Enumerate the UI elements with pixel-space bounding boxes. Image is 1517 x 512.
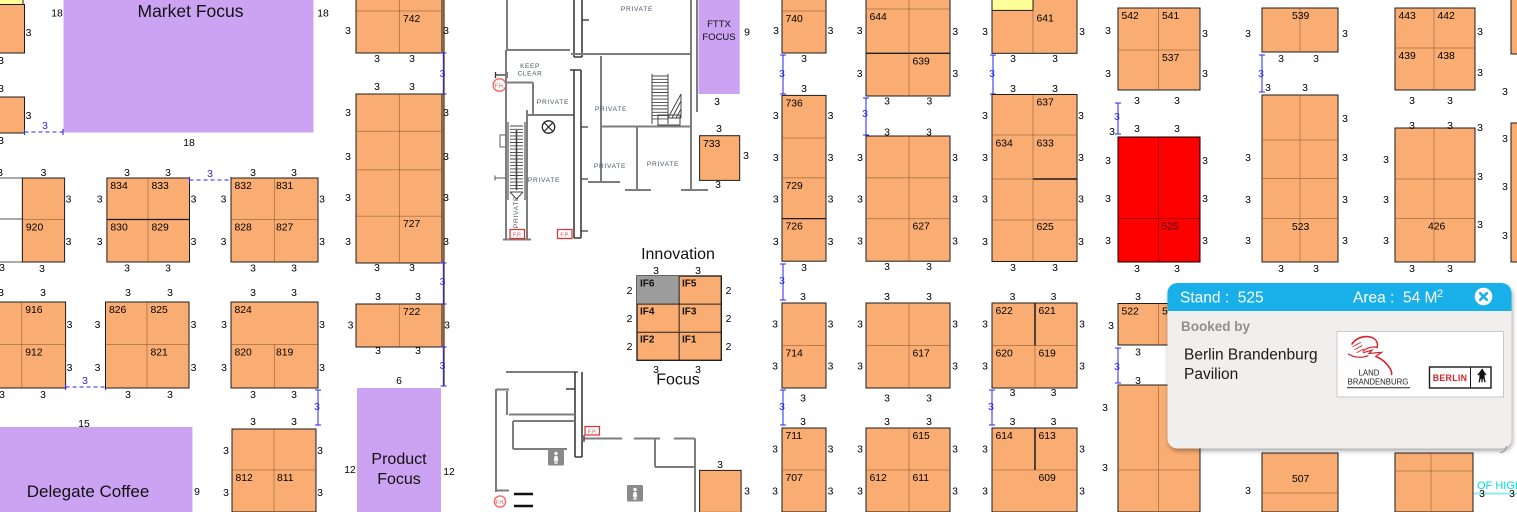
svg-text:3: 3	[1010, 84, 1016, 95]
svg-text:3: 3	[952, 237, 958, 248]
svg-text:3: 3	[319, 237, 325, 248]
svg-text:3: 3	[1245, 29, 1251, 40]
svg-text:3: 3	[926, 417, 932, 428]
svg-text:3: 3	[801, 54, 807, 65]
svg-text:3: 3	[1342, 29, 1348, 40]
svg-text:PRIVATE: PRIVATE	[647, 161, 679, 168]
svg-text:3: 3	[828, 362, 834, 373]
svg-text:F.P.: F.P.	[513, 233, 522, 239]
svg-text:3: 3	[1174, 96, 1180, 107]
svg-text:3: 3	[779, 276, 785, 287]
svg-text:812: 812	[236, 473, 254, 484]
svg-text:3: 3	[772, 445, 778, 456]
svg-text:3: 3	[409, 82, 415, 93]
svg-text:3: 3	[95, 363, 101, 374]
svg-text:BERLIN: BERLIN	[1433, 373, 1468, 383]
svg-text:3: 3	[801, 263, 807, 274]
svg-text:3: 3	[291, 264, 297, 275]
svg-text:542: 542	[1122, 11, 1140, 22]
svg-text:3: 3	[1079, 445, 1085, 456]
svg-text:3: 3	[191, 237, 197, 248]
svg-text:3: 3	[1010, 292, 1016, 303]
svg-text:824: 824	[235, 305, 253, 316]
svg-text:614: 614	[996, 431, 1014, 442]
svg-text:3: 3	[1245, 195, 1251, 206]
svg-text:707: 707	[786, 473, 804, 484]
svg-text:3: 3	[1447, 96, 1453, 107]
svg-text:3: 3	[443, 152, 449, 163]
svg-text:3: 3	[1134, 264, 1140, 275]
svg-text:3: 3	[1109, 127, 1115, 138]
svg-text:3: 3	[66, 237, 72, 248]
svg-text:3: 3	[857, 195, 863, 206]
svg-text:3: 3	[191, 363, 197, 374]
svg-text:3: 3	[1477, 123, 1483, 134]
svg-text:3: 3	[1202, 194, 1208, 205]
svg-text:Product: Product	[371, 451, 427, 468]
svg-text:3: 3	[952, 69, 958, 80]
svg-text:3: 3	[744, 487, 750, 498]
svg-text:3: 3	[1105, 236, 1111, 247]
svg-text:F.H.: F.H.	[496, 500, 505, 506]
svg-text:3: 3	[345, 152, 351, 163]
svg-text:3: 3	[415, 346, 421, 357]
svg-text:3: 3	[26, 28, 32, 39]
svg-text:3: 3	[1313, 264, 1319, 275]
svg-text:3: 3	[250, 390, 256, 401]
svg-text:541: 541	[1162, 11, 1180, 22]
svg-text:3: 3	[221, 320, 227, 331]
svg-text:613: 613	[1039, 431, 1057, 442]
svg-text:3: 3	[0, 56, 4, 67]
svg-text:3: 3	[1409, 264, 1415, 275]
svg-text:3: 3	[828, 237, 834, 248]
svg-text:3: 3	[1245, 486, 1251, 497]
svg-text:3: 3	[828, 111, 834, 122]
svg-text:523: 523	[1292, 222, 1310, 233]
svg-text:3: 3	[779, 69, 785, 80]
svg-text:3: 3	[773, 153, 779, 164]
svg-text:726: 726	[786, 222, 804, 233]
svg-text:3: 3	[1102, 463, 1108, 474]
svg-text:Area : 54 M: Area : 54 M	[1353, 290, 1437, 307]
svg-text:3: 3	[773, 237, 779, 248]
svg-text:3: 3	[250, 264, 256, 275]
svg-text:442: 442	[1438, 11, 1456, 22]
svg-text:3: 3	[982, 237, 988, 248]
svg-text:3: 3	[773, 195, 779, 206]
svg-text:18: 18	[51, 9, 63, 20]
svg-text:3: 3	[1010, 263, 1016, 274]
svg-text:3: 3	[125, 390, 131, 401]
svg-text:3: 3	[857, 445, 863, 456]
svg-text:9: 9	[194, 487, 200, 498]
svg-text:3: 3	[715, 180, 721, 191]
svg-text:3: 3	[1010, 54, 1016, 65]
svg-text:641: 641	[1037, 13, 1055, 24]
svg-text:3: 3	[772, 487, 778, 498]
svg-text:6: 6	[396, 376, 402, 387]
svg-text:3: 3	[884, 417, 890, 428]
svg-text:3: 3	[800, 394, 806, 405]
svg-text:832: 832	[235, 181, 253, 192]
svg-text:619: 619	[1039, 349, 1057, 360]
svg-text:3: 3	[779, 402, 785, 413]
svg-text:3: 3	[124, 168, 130, 179]
svg-text:3: 3	[345, 108, 351, 119]
svg-text:3: 3	[828, 320, 834, 331]
svg-text:820: 820	[235, 348, 253, 359]
svg-text:3: 3	[1010, 388, 1016, 399]
svg-text:438: 438	[1438, 51, 1456, 62]
svg-text:522: 522	[1122, 307, 1140, 318]
svg-text:15: 15	[78, 419, 90, 430]
svg-text:3: 3	[927, 97, 933, 108]
svg-text:3: 3	[1135, 292, 1141, 303]
svg-text:834: 834	[110, 181, 128, 192]
svg-text:831: 831	[276, 181, 294, 192]
svg-text:825: 825	[151, 305, 169, 316]
svg-text:3: 3	[862, 109, 868, 120]
svg-text:3: 3	[772, 320, 778, 331]
svg-text:621: 621	[1039, 306, 1057, 317]
svg-text:3: 3	[714, 97, 720, 108]
svg-text:615: 615	[913, 431, 931, 442]
svg-text:811: 811	[277, 473, 294, 484]
svg-text:3: 3	[440, 277, 446, 288]
svg-text:3: 3	[375, 292, 381, 303]
svg-text:3: 3	[717, 460, 723, 471]
svg-text:3: 3	[952, 320, 958, 331]
svg-text:2: 2	[726, 286, 732, 297]
svg-text:3: 3	[884, 394, 890, 405]
svg-text:439: 439	[1399, 51, 1417, 62]
svg-text:3: 3	[952, 487, 958, 498]
svg-text:3: 3	[1383, 155, 1389, 166]
svg-text:3: 3	[884, 128, 890, 139]
svg-text:F.P.: F.P.	[560, 233, 569, 239]
svg-text:819: 819	[276, 348, 294, 359]
svg-text:3: 3	[1509, 489, 1515, 500]
svg-text:Stand : 525: Stand : 525	[1180, 290, 1264, 307]
svg-text:F.P.: F.P.	[588, 430, 597, 436]
svg-text:3: 3	[828, 153, 834, 164]
svg-text:3: 3	[221, 195, 227, 206]
svg-text:18: 18	[317, 9, 329, 20]
svg-text:3: 3	[743, 151, 749, 162]
svg-text:3: 3	[374, 263, 380, 274]
svg-text:3: 3	[800, 417, 806, 428]
svg-text:PRIVATE: PRIVATE	[595, 106, 627, 113]
svg-text:3: 3	[926, 262, 932, 273]
svg-text:3: 3	[653, 266, 659, 277]
svg-text:3: 3	[0, 84, 4, 95]
svg-text:3: 3	[1105, 69, 1111, 80]
svg-text:3: 3	[1302, 83, 1308, 94]
svg-text:830: 830	[110, 223, 128, 234]
svg-text:Innovation: Innovation	[641, 246, 715, 263]
svg-text:3: 3	[191, 320, 197, 331]
svg-text:3: 3	[223, 488, 229, 499]
svg-text:539: 539	[1292, 11, 1310, 22]
svg-text:PRIVATE: PRIVATE	[513, 196, 520, 228]
svg-text:Delegate Coffee: Delegate Coffee	[27, 482, 150, 501]
svg-text:3: 3	[1078, 195, 1084, 206]
svg-text:3: 3	[191, 195, 197, 206]
svg-text:3: 3	[1052, 54, 1058, 65]
svg-text:3: 3	[828, 195, 834, 206]
svg-text:PRIVATE: PRIVATE	[594, 163, 626, 170]
svg-text:3: 3	[926, 394, 932, 405]
svg-text:3: 3	[952, 445, 958, 456]
svg-text:3: 3	[1105, 156, 1111, 167]
svg-text:3: 3	[317, 446, 323, 457]
svg-text:826: 826	[109, 305, 127, 316]
svg-text:3: 3	[1409, 96, 1415, 107]
svg-text:3: 3	[221, 363, 227, 374]
svg-text:3: 3	[982, 195, 988, 206]
svg-text:443: 443	[1399, 11, 1417, 22]
svg-text:BRANDENBURG: BRANDENBURG	[1348, 378, 1409, 387]
svg-text:3: 3	[1051, 388, 1057, 399]
svg-text:3: 3	[250, 288, 256, 299]
svg-text:3: 3	[952, 153, 958, 164]
svg-text:3: 3	[415, 292, 421, 303]
svg-text:639: 639	[913, 56, 931, 67]
svg-text:3: 3	[1342, 236, 1348, 247]
svg-text:711: 711	[786, 431, 803, 442]
svg-text:3: 3	[982, 27, 988, 38]
svg-text:3: 3	[40, 288, 46, 299]
svg-text:622: 622	[996, 306, 1014, 317]
svg-text:3: 3	[1278, 54, 1284, 65]
svg-text:3: 3	[291, 168, 297, 179]
svg-text:740: 740	[786, 14, 804, 25]
svg-text:Booked by: Booked by	[1181, 319, 1251, 334]
svg-text:3: 3	[374, 54, 380, 65]
svg-text:3: 3	[167, 390, 173, 401]
svg-text:742: 742	[403, 14, 421, 25]
svg-text:3: 3	[409, 54, 415, 65]
svg-text:FOCUS: FOCUS	[702, 32, 735, 43]
svg-text:3: 3	[317, 488, 323, 499]
svg-text:3: 3	[95, 320, 101, 331]
svg-text:3: 3	[443, 108, 449, 119]
svg-text:3: 3	[982, 445, 988, 456]
svg-text:3: 3	[1477, 68, 1483, 79]
svg-text:3: 3	[1102, 403, 1108, 414]
svg-text:3: 3	[443, 193, 449, 204]
svg-text:3: 3	[828, 26, 834, 37]
svg-text:3: 3	[828, 487, 834, 498]
svg-text:3: 3	[884, 97, 890, 108]
svg-text:2: 2	[627, 286, 633, 297]
svg-text:2: 2	[726, 342, 732, 353]
svg-text:9: 9	[744, 28, 750, 39]
svg-text:3: 3	[1447, 264, 1453, 275]
svg-text:3: 3	[1079, 487, 1085, 498]
svg-text:3: 3	[1202, 236, 1208, 247]
svg-text:3: 3	[1383, 195, 1389, 206]
svg-text:Focus: Focus	[656, 372, 700, 389]
svg-text:3: 3	[167, 288, 173, 299]
svg-text:633: 633	[1037, 139, 1055, 150]
svg-text:3: 3	[772, 362, 778, 373]
svg-text:3: 3	[801, 84, 807, 95]
svg-text:3: 3	[0, 263, 5, 274]
svg-text:620: 620	[996, 349, 1014, 360]
svg-text:612: 612	[870, 473, 888, 484]
svg-text:609: 609	[1039, 473, 1057, 484]
svg-text:3: 3	[1078, 153, 1084, 164]
svg-text:3: 3	[314, 402, 320, 413]
svg-text:IF3: IF3	[682, 307, 697, 318]
svg-text:3: 3	[39, 264, 45, 275]
svg-text:3: 3	[1502, 87, 1508, 98]
svg-text:3: 3	[440, 69, 446, 80]
svg-text:3: 3	[982, 111, 988, 122]
svg-text:Focus: Focus	[377, 471, 421, 488]
svg-text:634: 634	[996, 139, 1014, 150]
svg-text:827: 827	[276, 223, 294, 234]
svg-text:3: 3	[857, 320, 863, 331]
svg-text:3: 3	[291, 417, 297, 428]
svg-text:3: 3	[165, 264, 171, 275]
svg-text:3: 3	[1051, 417, 1057, 428]
svg-text:3: 3	[982, 320, 988, 331]
svg-text:3: 3	[1078, 237, 1084, 248]
svg-text:3: 3	[97, 195, 103, 206]
svg-text:2: 2	[627, 314, 633, 325]
svg-text:3: 3	[26, 111, 32, 122]
svg-text:3: 3	[1477, 220, 1483, 231]
svg-text:IF4: IF4	[640, 307, 655, 318]
svg-text:3: 3	[319, 363, 325, 374]
svg-text:3: 3	[250, 168, 256, 179]
svg-text:3: 3	[1342, 114, 1348, 125]
svg-text:733: 733	[703, 139, 721, 150]
svg-text:525: 525	[1162, 222, 1180, 233]
svg-text:3: 3	[988, 402, 994, 413]
svg-text:Market Focus: Market Focus	[138, 1, 244, 21]
svg-text:3: 3	[1079, 362, 1085, 373]
svg-text:3: 3	[773, 26, 779, 37]
svg-text:916: 916	[25, 305, 43, 316]
svg-text:821: 821	[151, 348, 169, 359]
svg-text:Pavilion: Pavilion	[1184, 366, 1238, 383]
svg-text:3: 3	[952, 195, 958, 206]
svg-text:3: 3	[221, 237, 227, 248]
svg-text:828: 828	[235, 223, 253, 234]
svg-text:3: 3	[319, 195, 325, 206]
svg-text:3: 3	[982, 153, 988, 164]
svg-text:617: 617	[913, 349, 931, 360]
svg-text:3: 3	[857, 487, 863, 498]
svg-text:3: 3	[42, 121, 48, 132]
svg-text:3: 3	[1052, 263, 1058, 274]
svg-text:18: 18	[183, 138, 195, 149]
svg-text:3: 3	[319, 320, 325, 331]
svg-text:3: 3	[223, 446, 229, 457]
svg-text:3: 3	[345, 237, 351, 248]
svg-text:3: 3	[124, 264, 130, 275]
svg-text:912: 912	[25, 348, 43, 359]
svg-text:3: 3	[66, 195, 72, 206]
svg-text:3: 3	[67, 320, 73, 331]
svg-text:3: 3	[1278, 264, 1284, 275]
svg-text:3: 3	[444, 321, 450, 332]
svg-text:3: 3	[1477, 172, 1483, 183]
svg-text:2: 2	[627, 342, 633, 353]
svg-text:3: 3	[1079, 27, 1085, 38]
svg-text:IF1: IF1	[682, 335, 697, 346]
svg-text:627: 627	[913, 222, 931, 233]
svg-text:537: 537	[1162, 53, 1180, 64]
svg-text:3: 3	[125, 288, 131, 299]
svg-text:833: 833	[152, 181, 170, 192]
svg-text:625: 625	[1037, 222, 1055, 233]
svg-text:3: 3	[345, 26, 351, 37]
svg-text:F.H.: F.H.	[495, 84, 505, 90]
svg-text:3: 3	[982, 362, 988, 373]
svg-text:3: 3	[1078, 111, 1084, 122]
svg-text:3: 3	[375, 346, 381, 357]
svg-text:3: 3	[989, 69, 995, 80]
svg-text:3: 3	[1010, 417, 1016, 428]
svg-text:Berlin Brandenburg: Berlin Brandenburg	[1184, 347, 1318, 364]
svg-text:507: 507	[1292, 474, 1310, 485]
svg-text:3: 3	[952, 362, 958, 373]
svg-text:736: 736	[786, 99, 804, 110]
svg-text:3: 3	[1202, 156, 1208, 167]
svg-text:CLEAR: CLEAR	[518, 71, 543, 78]
svg-text:3: 3	[926, 292, 932, 303]
svg-text:3: 3	[952, 27, 958, 38]
svg-text:3: 3	[1134, 124, 1140, 135]
svg-text:PRIVATE: PRIVATE	[621, 6, 653, 13]
svg-text:3: 3	[1447, 121, 1453, 132]
svg-text:3: 3	[1052, 84, 1058, 95]
svg-text:3: 3	[443, 26, 449, 37]
svg-text:3: 3	[982, 487, 988, 498]
svg-text:729: 729	[786, 181, 804, 192]
svg-text:3: 3	[857, 362, 863, 373]
svg-text:3: 3	[440, 361, 446, 372]
svg-text:FTTX: FTTX	[707, 19, 731, 30]
svg-text:3: 3	[1502, 134, 1508, 145]
svg-text:2: 2	[1437, 288, 1443, 300]
svg-text:3: 3	[67, 363, 73, 374]
svg-text:3: 3	[1479, 489, 1485, 500]
svg-text:LAND: LAND	[1359, 369, 1380, 378]
svg-text:3: 3	[409, 263, 415, 274]
svg-text:3: 3	[1265, 83, 1271, 94]
svg-text:722: 722	[403, 307, 421, 318]
svg-text:3: 3	[1114, 112, 1120, 123]
svg-text:3: 3	[926, 128, 932, 139]
svg-text:IF6: IF6	[640, 279, 655, 290]
svg-text:2: 2	[726, 314, 732, 325]
svg-text:3: 3	[0, 390, 5, 401]
svg-text:3: 3	[828, 445, 834, 456]
svg-text:3: 3	[1202, 29, 1208, 40]
svg-text:3: 3	[97, 237, 103, 248]
svg-text:3: 3	[884, 262, 890, 273]
svg-text:426: 426	[1428, 222, 1446, 233]
svg-text:3: 3	[1245, 153, 1251, 164]
svg-text:3: 3	[1202, 69, 1208, 80]
svg-text:3: 3	[1105, 194, 1111, 205]
